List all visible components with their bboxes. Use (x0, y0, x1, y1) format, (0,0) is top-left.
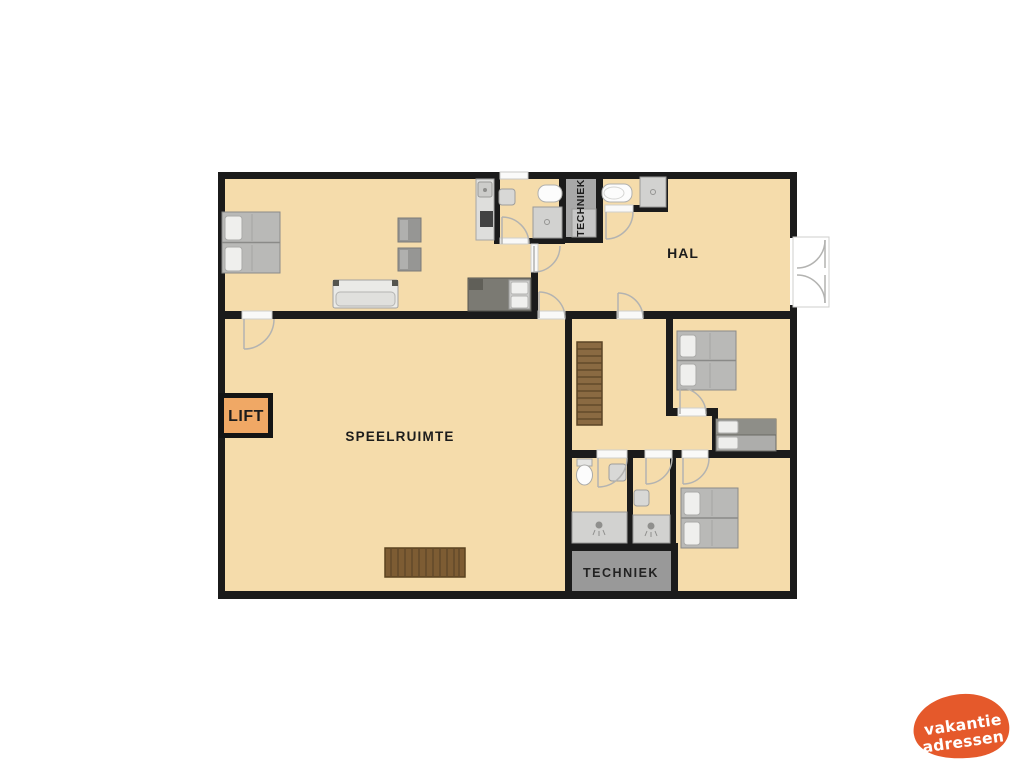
window-top (500, 172, 528, 179)
bath (602, 184, 632, 202)
bed-top-left (222, 212, 280, 273)
sink (499, 189, 515, 205)
wall-h2-b (627, 450, 645, 458)
wall-tbot-right (671, 543, 678, 591)
pillow (684, 492, 700, 515)
wall-ttop-right (596, 172, 603, 243)
room-label-techniek-top: TECHNIEK (575, 179, 587, 237)
wall-outer-bottom (218, 591, 797, 599)
vakantieadressen-logo: vakantie adressen (914, 694, 1010, 758)
stove (480, 211, 493, 227)
pillow (680, 335, 696, 357)
shower (640, 177, 666, 207)
floorplan-svg: HAL SPEELRUIMTE LIFT TECHNIEK TECHNIEK v… (0, 0, 1024, 768)
toilet (577, 465, 593, 485)
wall-h1-a (218, 311, 242, 319)
floorplan-page: HAL SPEELRUIMTE LIFT TECHNIEK TECHNIEK v… (0, 0, 1024, 768)
shower (533, 207, 562, 238)
kitchenette (476, 179, 494, 240)
pillow (718, 437, 738, 449)
room-label-techniek-bottom: TECHNIEK (583, 566, 659, 580)
pillow (680, 364, 696, 386)
bunk-bed-living (468, 278, 531, 311)
pillow (684, 522, 700, 545)
wall-h2-c (672, 450, 682, 458)
room-label-hal: HAL (667, 245, 699, 261)
bed-bottom-right (681, 488, 738, 548)
wall-bath-divider (627, 458, 633, 543)
entrance-double-door (793, 237, 829, 307)
pillow (511, 282, 528, 294)
wall-kitchen (494, 172, 500, 244)
pillow (225, 216, 242, 240)
pillow (225, 247, 242, 271)
wall-vestibule-stub (531, 272, 538, 319)
wall-bedtr-bottom-b (706, 408, 718, 416)
wall-bathb-right (670, 458, 676, 543)
pillow (718, 421, 738, 433)
bunk-bed-niche (716, 419, 776, 451)
wall-bedtr-left (666, 319, 673, 415)
room-label-speelruimte: SPEELRUIMTE (345, 429, 454, 444)
room-label-lift: LIFT (228, 408, 264, 425)
wall-outer-right-lower (790, 305, 797, 599)
pillow (511, 296, 528, 308)
wall-bedtr-bottom-a (666, 408, 678, 416)
wall-ttop-bottom (559, 237, 603, 243)
wall-h1-b (272, 311, 538, 319)
wall-h2-a (565, 450, 597, 458)
sink (634, 490, 649, 506)
wall-outer-right-upper (790, 172, 797, 238)
bed-top-right (677, 331, 736, 390)
stairs (577, 342, 602, 425)
toilet (538, 185, 562, 202)
wall-h1-d (643, 311, 790, 319)
wooden-table (385, 548, 465, 577)
wall-h1-c (565, 311, 617, 319)
sofa (333, 280, 398, 308)
wall-tbot-top (565, 543, 678, 551)
